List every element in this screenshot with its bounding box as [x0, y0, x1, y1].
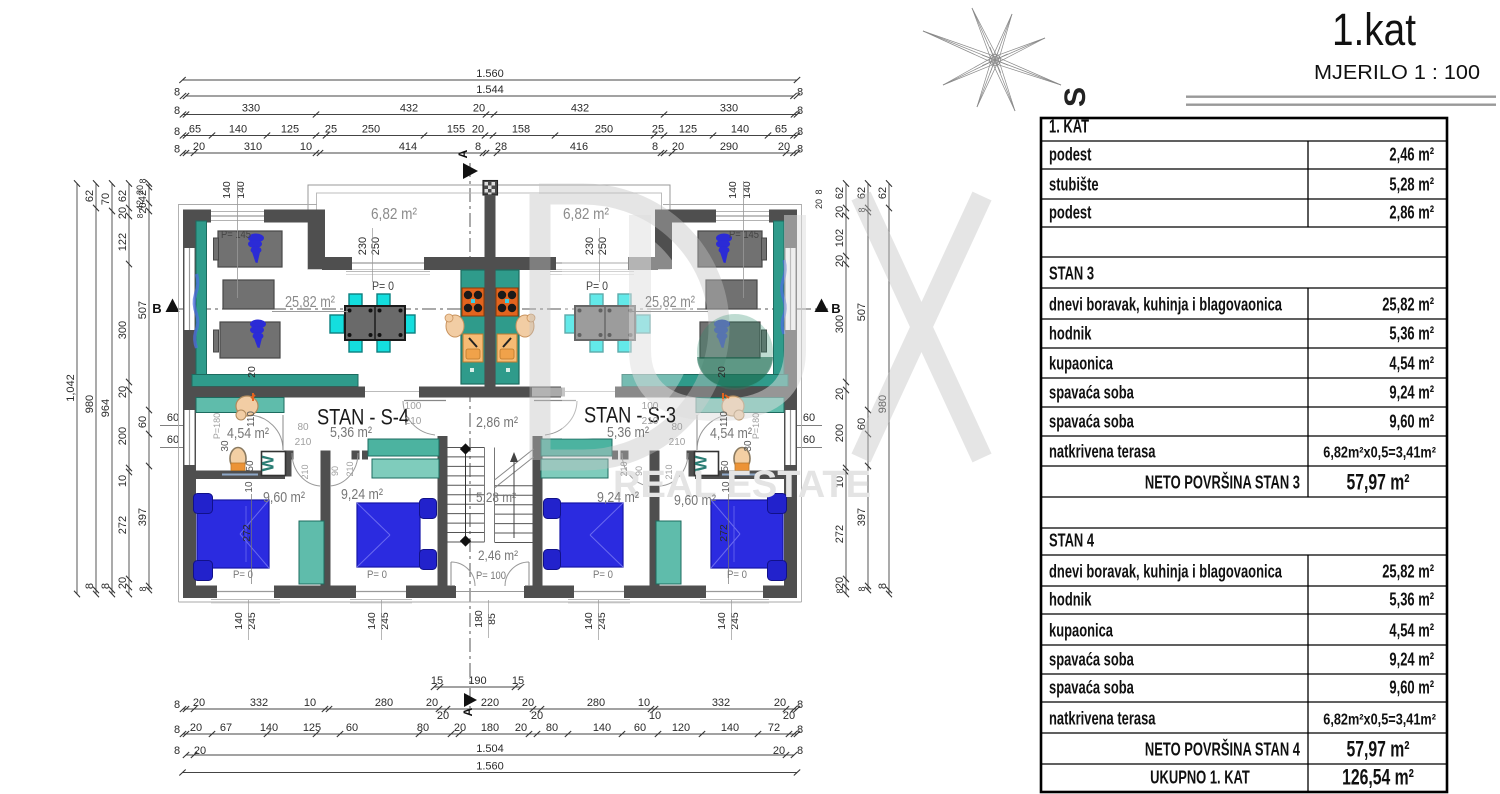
svg-text:80: 80 [671, 422, 683, 433]
svg-text:natkrivena terasa: natkrivena terasa [1049, 709, 1156, 729]
svg-text:8: 8 [174, 699, 180, 711]
svg-text:20: 20 [193, 697, 205, 709]
svg-text:podest: podest [1049, 145, 1092, 165]
svg-text:250: 250 [597, 237, 609, 255]
svg-text:62: 62 [84, 190, 96, 202]
svg-text:MJERILO 1 : 100: MJERILO 1 : 100 [1314, 61, 1480, 84]
svg-text:125: 125 [281, 124, 299, 136]
svg-text:6,82 m²: 6,82 m² [563, 206, 610, 223]
svg-text:25: 25 [325, 124, 337, 136]
svg-text:310: 310 [244, 141, 262, 153]
svg-text:kupaonica: kupaonica [1049, 621, 1113, 641]
svg-text:122: 122 [117, 233, 129, 251]
svg-text:90: 90 [634, 466, 644, 476]
svg-text:8: 8 [136, 213, 145, 218]
svg-text:250: 250 [595, 124, 613, 136]
svg-text:P= 0: P= 0 [727, 569, 747, 581]
svg-text:8: 8 [174, 724, 180, 736]
svg-text:280: 280 [375, 697, 393, 709]
svg-text:210: 210 [345, 461, 355, 476]
svg-text:125: 125 [679, 124, 697, 136]
svg-text:245: 245 [729, 612, 741, 630]
svg-text:272: 272 [117, 516, 129, 534]
svg-text:1. KAT: 1. KAT [1049, 117, 1089, 137]
svg-text:P= 145: P= 145 [221, 229, 251, 241]
svg-text:20: 20 [246, 366, 258, 378]
svg-text:250: 250 [362, 124, 380, 136]
svg-text:280: 280 [587, 697, 605, 709]
svg-text:80: 80 [297, 422, 309, 433]
svg-text:1.kat: 1.kat [1332, 4, 1416, 55]
svg-text:272: 272 [718, 524, 730, 542]
svg-text:5,36 m²: 5,36 m² [1389, 324, 1434, 344]
svg-text:5,36 m²: 5,36 m² [1389, 590, 1434, 610]
svg-text:spavaća soba: spavaća soba [1049, 678, 1134, 698]
svg-text:20: 20 [515, 722, 527, 734]
svg-text:8: 8 [797, 724, 803, 736]
svg-text:250: 250 [370, 237, 382, 255]
svg-text:90: 90 [330, 466, 340, 476]
svg-text:spavaća soba: spavaća soba [1049, 383, 1134, 403]
svg-text:hodnik: hodnik [1049, 590, 1092, 610]
svg-text:9,24 m²: 9,24 m² [341, 486, 383, 503]
svg-text:8: 8 [797, 745, 803, 757]
svg-text:2,86 m²: 2,86 m² [476, 414, 518, 431]
svg-text:50: 50 [720, 460, 731, 472]
svg-text:140: 140 [366, 612, 378, 630]
svg-text:980: 980 [84, 395, 96, 413]
svg-text:120: 120 [672, 722, 690, 734]
svg-text:60: 60 [167, 412, 179, 424]
svg-text:8: 8 [814, 189, 824, 194]
svg-text:20: 20 [193, 141, 205, 153]
svg-text:8: 8 [857, 586, 867, 591]
svg-text:432: 432 [400, 103, 418, 115]
svg-text:30: 30 [743, 440, 754, 452]
svg-text:140: 140 [721, 722, 739, 734]
svg-text:1.544: 1.544 [476, 84, 504, 96]
svg-text:10: 10 [244, 481, 255, 493]
svg-text:60: 60 [803, 412, 815, 424]
svg-text:20: 20 [672, 141, 684, 153]
svg-text:416: 416 [570, 141, 588, 153]
svg-text:20: 20 [814, 199, 824, 209]
svg-text:8: 8 [174, 144, 180, 156]
svg-text:A: A [461, 707, 475, 716]
svg-text:272: 272 [241, 524, 253, 542]
svg-text:397: 397 [137, 508, 149, 526]
svg-text:spavaća soba: spavaća soba [1049, 412, 1134, 432]
svg-text:50: 50 [245, 460, 256, 472]
svg-text:9,60 m²: 9,60 m² [674, 492, 716, 509]
svg-text:8: 8 [797, 126, 803, 138]
svg-text:10: 10 [117, 475, 129, 487]
svg-text:964: 964 [100, 399, 112, 417]
svg-text:245: 245 [246, 612, 258, 630]
svg-text:20: 20 [190, 722, 202, 734]
svg-text:30: 30 [220, 440, 231, 452]
svg-text:57,97 m²: 57,97 m² [1347, 470, 1410, 495]
svg-text:8: 8 [138, 586, 148, 591]
svg-text:8: 8 [797, 144, 803, 156]
svg-text:20: 20 [778, 141, 790, 153]
svg-text:8: 8 [797, 87, 803, 99]
svg-text:A: A [456, 149, 470, 158]
svg-text:272: 272 [834, 525, 846, 543]
svg-text:200: 200 [834, 424, 846, 442]
svg-text:2,46 m²: 2,46 m² [478, 547, 518, 563]
svg-text:20: 20 [454, 722, 466, 734]
svg-text:8: 8 [174, 87, 180, 99]
svg-text:210: 210 [405, 416, 422, 427]
svg-text:140: 140 [716, 612, 728, 630]
svg-text:110: 110 [246, 411, 257, 427]
svg-text:1.560: 1.560 [476, 761, 504, 773]
svg-text:330: 330 [720, 103, 738, 115]
svg-text:8: 8 [138, 178, 148, 183]
svg-text:140: 140 [741, 181, 753, 199]
svg-text:8: 8 [877, 583, 889, 589]
svg-text:70: 70 [100, 193, 112, 205]
svg-text:200: 200 [117, 427, 129, 445]
svg-text:8: 8 [652, 141, 658, 153]
svg-text:507: 507 [856, 303, 868, 321]
svg-text:6,82 m²: 6,82 m² [371, 206, 418, 223]
svg-text:20: 20 [117, 386, 129, 398]
svg-text:67: 67 [220, 722, 232, 734]
svg-text:5,36 m²: 5,36 m² [330, 424, 372, 441]
svg-text:10: 10 [721, 481, 732, 493]
svg-text:100: 100 [642, 401, 659, 412]
svg-text:5,28 m²: 5,28 m² [1389, 175, 1434, 195]
svg-text:180: 180 [473, 610, 485, 628]
svg-text:9,60 m²: 9,60 m² [263, 489, 305, 506]
svg-text:80: 80 [546, 722, 558, 734]
svg-text:20: 20 [834, 577, 846, 589]
svg-text:245: 245 [379, 612, 391, 630]
svg-text:REAL ESTATE: REAL ESTATE [613, 464, 871, 506]
svg-text:180: 180 [481, 722, 499, 734]
svg-text:20: 20 [472, 124, 484, 136]
svg-text:P=180: P=180 [212, 413, 222, 439]
svg-text:10: 10 [304, 697, 316, 709]
svg-text:20: 20 [834, 255, 846, 267]
svg-text:P= 100: P= 100 [476, 570, 506, 582]
svg-text:9,60 m²: 9,60 m² [1389, 412, 1434, 432]
svg-text:20: 20 [117, 207, 129, 219]
svg-text:dnevi boravak, kuhinja i blago: dnevi boravak, kuhinja i blagovaonica [1049, 562, 1282, 582]
svg-text:6,82m²x0,5=3,41m²: 6,82m²x0,5=3,41m² [1323, 711, 1436, 728]
svg-text:25,82 m²: 25,82 m² [285, 294, 336, 311]
svg-text:S: S [1059, 87, 1092, 107]
svg-text:20: 20 [773, 745, 785, 757]
svg-text:140: 140 [221, 181, 233, 199]
svg-text:P= 0: P= 0 [367, 569, 387, 581]
svg-text:140: 140 [235, 181, 247, 199]
svg-text:2,46 m²: 2,46 m² [1389, 145, 1434, 165]
svg-text:140: 140 [583, 612, 595, 630]
svg-text:140: 140 [229, 124, 247, 136]
svg-text:210: 210 [664, 464, 674, 479]
svg-text:60: 60 [167, 434, 179, 446]
svg-text:20: 20 [783, 710, 795, 722]
svg-text:62: 62 [117, 190, 129, 202]
svg-text:20: 20 [531, 710, 543, 722]
svg-text:60: 60 [137, 416, 149, 428]
svg-text:230: 230 [357, 237, 369, 255]
svg-text:8: 8 [174, 745, 180, 757]
svg-text:85: 85 [486, 613, 498, 625]
svg-text:20: 20 [135, 185, 145, 195]
svg-text:8: 8 [84, 583, 96, 589]
svg-text:dnevi boravak, kuhinja i blago: dnevi boravak, kuhinja i blagovaonica [1049, 295, 1282, 315]
svg-text:210: 210 [642, 416, 659, 427]
svg-text:332: 332 [250, 697, 268, 709]
svg-text:9,60 m²: 9,60 m² [1389, 678, 1434, 698]
svg-text:190: 190 [468, 675, 486, 687]
svg-text:140: 140 [233, 612, 245, 630]
svg-text:20: 20 [716, 366, 728, 378]
svg-text:9,24 m²: 9,24 m² [597, 489, 639, 506]
svg-text:8: 8 [835, 588, 845, 593]
svg-text:210: 210 [619, 461, 629, 476]
svg-text:8: 8 [475, 141, 481, 153]
svg-text:20: 20 [834, 388, 846, 400]
svg-text:110: 110 [719, 411, 730, 427]
svg-text:P= 0: P= 0 [372, 279, 394, 293]
svg-text:140: 140 [727, 181, 739, 199]
svg-text:290: 290 [720, 141, 738, 153]
svg-text:4,54 m²: 4,54 m² [1389, 621, 1434, 641]
svg-text:140: 140 [731, 124, 749, 136]
svg-text:9,24 m²: 9,24 m² [1389, 650, 1434, 670]
svg-text:STAN 3: STAN 3 [1049, 264, 1094, 284]
svg-text:100: 100 [405, 401, 422, 412]
svg-text:155: 155 [447, 124, 465, 136]
svg-text:20: 20 [117, 577, 129, 589]
svg-text:10: 10 [300, 141, 312, 153]
svg-text:20: 20 [473, 103, 485, 115]
svg-text:natkrivena terasa: natkrivena terasa [1049, 442, 1156, 462]
svg-text:20: 20 [426, 697, 438, 709]
svg-text:kupaonica: kupaonica [1049, 354, 1113, 374]
svg-text:podest: podest [1049, 203, 1092, 223]
svg-text:414: 414 [399, 141, 417, 153]
svg-text:210: 210 [300, 464, 310, 479]
svg-text:hodnik: hodnik [1049, 324, 1092, 344]
svg-text:5,28 m²: 5,28 m² [476, 489, 516, 505]
svg-text:20: 20 [522, 697, 534, 709]
svg-text:10: 10 [638, 697, 650, 709]
svg-text:140: 140 [593, 722, 611, 734]
svg-text:60: 60 [803, 434, 815, 446]
svg-text:62: 62 [877, 187, 889, 199]
svg-text:NETO POVRŠINA STAN 4: NETO POVRŠINA STAN 4 [1145, 738, 1300, 760]
svg-text:STAN 4: STAN 4 [1049, 531, 1094, 551]
svg-text:80: 80 [417, 722, 429, 734]
svg-text:25,82 m²: 25,82 m² [1382, 295, 1434, 315]
svg-text:P=180: P=180 [751, 413, 761, 439]
svg-text:6,82m²x0,5=3,41m²: 6,82m²x0,5=3,41m² [1323, 444, 1436, 461]
svg-text:300: 300 [834, 315, 846, 333]
svg-text:15: 15 [512, 675, 524, 687]
svg-text:158: 158 [512, 124, 530, 136]
svg-text:332: 332 [712, 697, 730, 709]
svg-text:507: 507 [137, 301, 149, 319]
svg-text:4,54 m²: 4,54 m² [1389, 354, 1434, 374]
svg-text:20: 20 [437, 710, 449, 722]
svg-text:397: 397 [856, 508, 868, 526]
svg-text:72: 72 [768, 722, 780, 734]
svg-text:60: 60 [346, 722, 358, 734]
svg-text:stubište: stubište [1049, 175, 1099, 195]
svg-text:UKUPNO 1. KAT: UKUPNO 1. KAT [1150, 768, 1250, 788]
svg-text:8: 8 [174, 105, 180, 117]
svg-text:220: 220 [481, 697, 499, 709]
svg-text:25: 25 [652, 124, 664, 136]
svg-text:126,54 m²: 126,54 m² [1342, 765, 1414, 790]
svg-text:65: 65 [775, 124, 787, 136]
svg-text:102: 102 [834, 229, 846, 247]
svg-text:W: W [259, 455, 278, 472]
svg-text:210: 210 [669, 437, 686, 448]
svg-text:10: 10 [649, 710, 661, 722]
svg-text:300: 300 [117, 321, 129, 339]
svg-text:P= 0: P= 0 [593, 569, 613, 581]
svg-text:432: 432 [571, 103, 589, 115]
svg-text:20: 20 [774, 697, 786, 709]
svg-text:2,86 m²: 2,86 m² [1389, 203, 1434, 223]
svg-text:P= 0: P= 0 [586, 279, 608, 293]
svg-text:8: 8 [100, 583, 112, 589]
svg-text:28: 28 [495, 141, 507, 153]
svg-text:230: 230 [584, 237, 596, 255]
svg-text:P= 145: P= 145 [729, 229, 759, 241]
svg-text:330: 330 [242, 103, 260, 115]
svg-text:NETO POVRŠINA STAN 3: NETO POVRŠINA STAN 3 [1145, 471, 1300, 493]
svg-text:210: 210 [295, 437, 312, 448]
svg-text:P= 0: P= 0 [233, 569, 253, 581]
svg-text:1.560: 1.560 [476, 68, 504, 80]
svg-text:20: 20 [834, 206, 846, 218]
svg-text:9,24 m²: 9,24 m² [1389, 383, 1434, 403]
svg-text:57,97 m²: 57,97 m² [1347, 737, 1410, 762]
svg-text:125: 125 [303, 722, 321, 734]
svg-text:1.504: 1.504 [476, 743, 504, 755]
svg-text:62: 62 [834, 187, 846, 199]
svg-text:1,042: 1,042 [65, 374, 77, 402]
svg-text:60: 60 [634, 722, 646, 734]
svg-text:25,82 m²: 25,82 m² [645, 294, 696, 311]
svg-text:8: 8 [174, 126, 180, 138]
svg-text:4,54 m²: 4,54 m² [710, 425, 752, 442]
svg-text:B: B [831, 301, 840, 316]
svg-text:42: 42 [135, 200, 145, 210]
svg-text:25,82 m²: 25,82 m² [1382, 562, 1434, 582]
svg-text:8: 8 [797, 105, 803, 117]
svg-text:65: 65 [189, 124, 201, 136]
svg-text:15: 15 [431, 675, 443, 687]
svg-text:20: 20 [194, 745, 206, 757]
svg-text:140: 140 [260, 722, 278, 734]
svg-text:8: 8 [797, 699, 803, 711]
svg-text:245: 245 [596, 612, 608, 630]
svg-text:spavaća soba: spavaća soba [1049, 650, 1134, 670]
svg-text:B: B [152, 301, 161, 316]
